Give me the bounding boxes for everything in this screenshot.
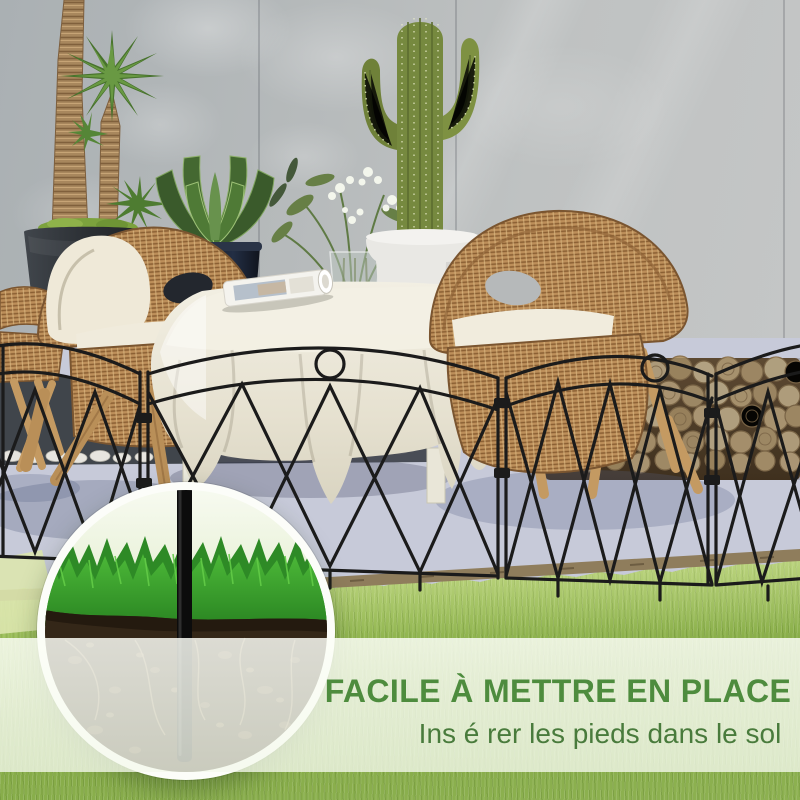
product-marketing-image: FACILE À METTRE EN PLACE Ins é rer les p… xyxy=(0,0,800,800)
caption-subtitle: Ins é rer les pieds dans le sol xyxy=(402,718,798,750)
caption-title: FACILE À METTRE EN PLACE xyxy=(318,674,798,709)
